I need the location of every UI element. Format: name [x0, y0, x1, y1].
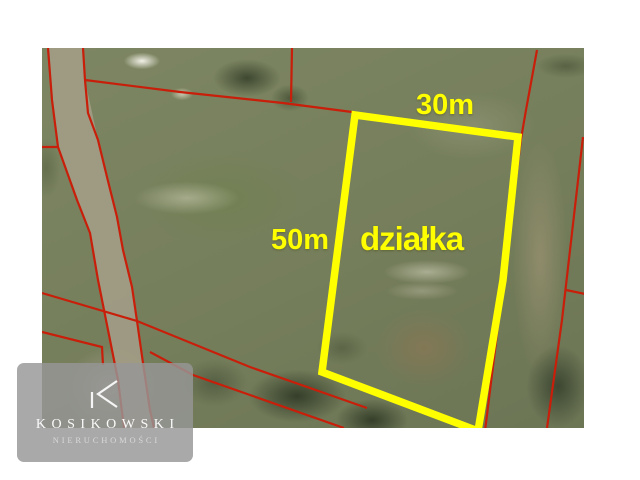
plot-highlight-outline: [322, 115, 518, 428]
red-parcel-line-corner-branch: [42, 332, 103, 365]
red-parcel-line-top-vertical: [291, 48, 292, 102]
kosikowski-logo-icon: [88, 379, 122, 409]
red-parcel-line-far-right: [547, 137, 583, 428]
red-parcel-line-top-boundary: [85, 80, 352, 112]
watermark-brand-name: KOSIKOWSKI: [30, 418, 179, 432]
plot-name-label: działka: [360, 222, 463, 255]
watermark-subtitle: NIERUCHOMOŚCI: [50, 436, 160, 445]
plot-depth-label: 50m: [271, 226, 329, 255]
listing-image: 30m 50m działka KOSIKOWSKI NIERUCHOMOŚCI: [0, 0, 640, 480]
plot-width-label: 30m: [416, 91, 474, 120]
watermark-panel: KOSIKOWSKI NIERUCHOMOŚCI: [17, 363, 193, 462]
red-parcel-line-far-right-branch: [566, 290, 584, 294]
